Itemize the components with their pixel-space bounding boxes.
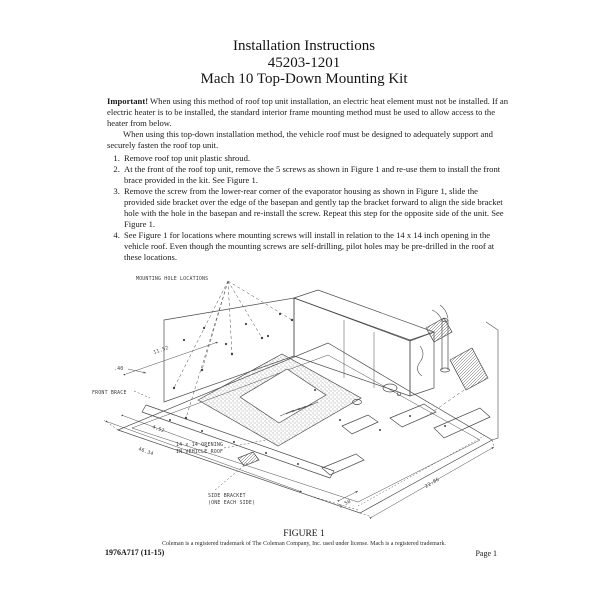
title-block: Installation Instructions 45203-1201 Mac…: [0, 38, 608, 88]
evaporator-housing: [294, 290, 434, 341]
instruction-steps: Remove roof top unit plastic shroud. At …: [107, 153, 509, 263]
page-number: Page 1: [475, 549, 497, 558]
dimension-right: 22.86: [424, 477, 441, 490]
figure-label-front-brace: FRONT BRACE: [92, 390, 127, 396]
figure-label-opening-line2: IN VEHICLE ROOF: [176, 449, 223, 455]
trademark-line: Coleman is a registered trademark of The…: [0, 541, 608, 547]
figure-label-mounting-holes: MOUNTING HOLE LOCATIONS: [136, 276, 208, 282]
important-label: Important!: [107, 96, 148, 106]
doc-part-number: 45203-1201: [0, 55, 608, 72]
figure-1-container: MOUNTING HOLE LOCATIONS FRONT BRACE 14 x…: [90, 270, 524, 526]
doc-title: Installation Instructions: [0, 38, 608, 55]
second-paragraph: When using this top-down installation me…: [107, 129, 509, 151]
important-text: When using this method of roof top unit …: [107, 96, 508, 128]
figure-label-side-bracket-line1: SIDE BRACKET: [208, 493, 246, 499]
dimension-front-upper: 4.52: [151, 424, 165, 434]
figure-label-opening-line1: 14 x 14 OPENING: [176, 442, 223, 448]
instruction-step-2: At the front of the roof top unit, remov…: [122, 164, 509, 186]
document-code: 1976A717 (11-15): [105, 548, 164, 557]
dimension-left: .40: [114, 366, 123, 372]
intro-paragraphs: Important! When using this method of roo…: [107, 96, 509, 151]
important-paragraph: Important! When using this method of roo…: [107, 96, 509, 129]
document-page: Installation Instructions 45203-1201 Mac…: [0, 0, 608, 608]
dimension-front-lower: 46.34: [137, 446, 154, 457]
figure-1-drawing: MOUNTING HOLE LOCATIONS FRONT BRACE 14 x…: [90, 270, 524, 526]
unit-line-art: [118, 290, 498, 513]
instruction-step-4: See Figure 1 for locations where mountin…: [122, 230, 509, 263]
figure-label-side-bracket-line2: (ONE EACH SIDE): [208, 500, 255, 506]
side-bracket-exploded: [450, 348, 488, 390]
doc-kit-name: Mach 10 Top-Down Mounting Kit: [0, 71, 608, 88]
dimension-top-left: 11.52: [153, 345, 170, 356]
instruction-step-3: Remove the screw from the lower-rear cor…: [122, 186, 509, 230]
figure-caption: FIGURE 1: [0, 529, 608, 539]
instruction-step-1: Remove roof top unit plastic shroud.: [122, 153, 509, 164]
